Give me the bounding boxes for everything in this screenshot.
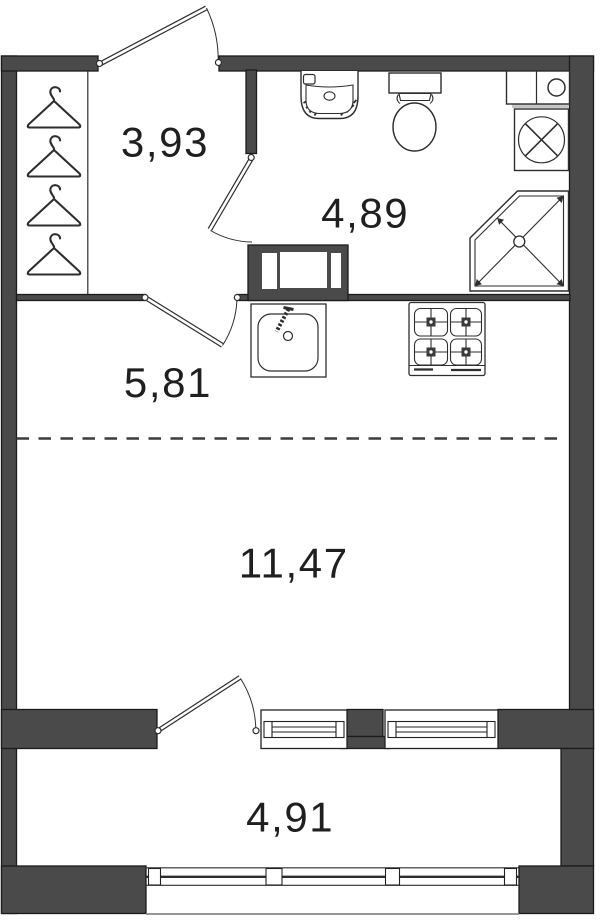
svg-text:3,93: 3,93: [121, 118, 209, 165]
svg-text:4,89: 4,89: [321, 190, 409, 237]
svg-text:11,47: 11,47: [239, 539, 349, 586]
svg-text:4,91: 4,91: [246, 794, 334, 841]
svg-text:5,81: 5,81: [124, 359, 212, 406]
